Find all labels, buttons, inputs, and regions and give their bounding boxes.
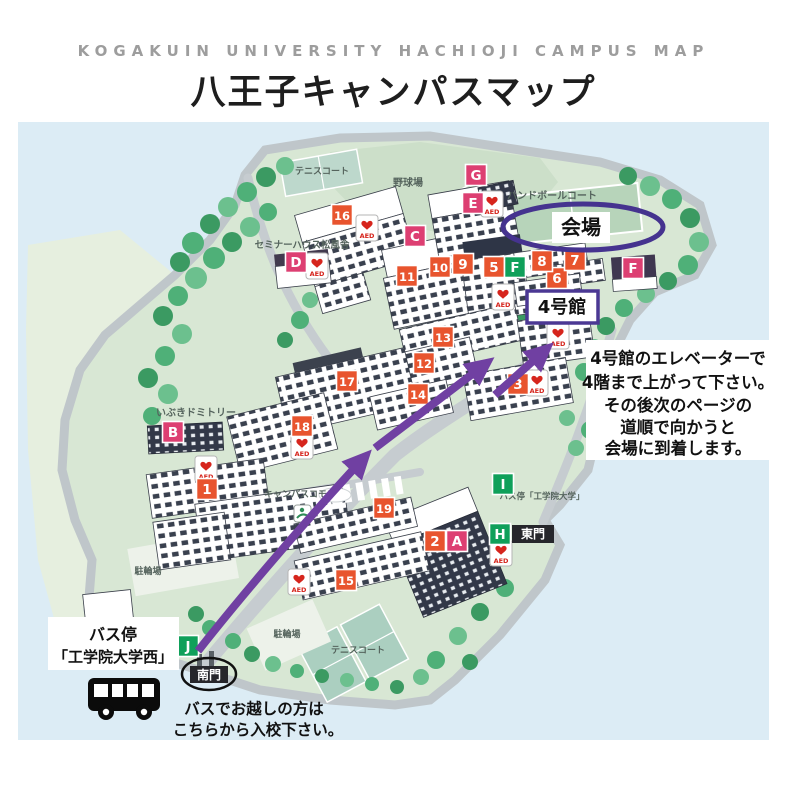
tree-icon: [200, 214, 220, 234]
tree-icon: [277, 332, 293, 348]
marker-5: 5: [484, 257, 505, 278]
tree-icon: [427, 651, 445, 669]
tree-icon: [568, 440, 584, 456]
svg-text:2: 2: [430, 534, 439, 550]
tree-icon: [680, 208, 700, 228]
tree-icon: [168, 286, 188, 306]
aed-marker: AED: [306, 253, 328, 279]
svg-text:15: 15: [338, 574, 354, 588]
area-label: ハンドボールコート: [507, 189, 597, 202]
svg-text:東門: 東門: [521, 526, 545, 541]
tree-icon: [237, 182, 257, 202]
svg-text:I: I: [500, 477, 505, 493]
tree-icon: [291, 311, 309, 329]
marker-16: 16: [332, 205, 353, 226]
campus-map: 野球場テニスコートハンドボールコートセミナーハウス松風舎いぶきドミトリーキャンパ…: [18, 122, 769, 740]
svg-text:道順で向かうと: 道順で向かうと: [620, 417, 736, 437]
tree-icon: [188, 606, 204, 622]
svg-text:12: 12: [416, 357, 432, 371]
tree-icon: [390, 680, 404, 694]
marker-f: F: [505, 257, 526, 278]
svg-text:バスでお越しの方は: バスでお越しの方は: [184, 699, 324, 718]
svg-text:J: J: [184, 639, 190, 655]
marker-11: 11: [397, 266, 418, 287]
tree-icon: [155, 346, 175, 366]
tree-icon: [462, 654, 478, 670]
marker-b: B: [163, 422, 184, 443]
svg-text:会場に到着します。: 会場に到着します。: [605, 438, 752, 458]
tree-icon: [413, 669, 429, 685]
venue-label: 会場: [561, 215, 601, 239]
svg-text:A: A: [452, 534, 463, 550]
tree-icon: [290, 664, 304, 678]
map-panel: 野球場テニスコートハンドボールコートセミナーハウス松風舎いぶきドミトリーキャンパ…: [18, 122, 769, 740]
tree-icon: [225, 633, 241, 649]
svg-text:6: 6: [552, 271, 561, 287]
tree-icon: [240, 217, 260, 237]
aed-marker: AED: [547, 323, 569, 349]
east-gate: 東門: [512, 525, 554, 543]
svg-text:AED: AED: [360, 232, 375, 240]
tree-icon: [449, 627, 467, 645]
svg-text:バス停: バス停: [89, 625, 137, 644]
marker-12: 12: [414, 353, 435, 374]
svg-text:10: 10: [432, 261, 448, 275]
marker-c: C: [405, 226, 426, 247]
tree-icon: [203, 247, 225, 269]
bus-icon: [88, 678, 160, 720]
svg-text:AED: AED: [485, 208, 500, 216]
tree-icon: [662, 189, 682, 209]
svg-text:こちらから入校下さい。: こちらから入校下さい。: [173, 720, 344, 739]
svg-text:F: F: [628, 261, 637, 277]
marker-h: H: [490, 524, 511, 545]
svg-text:AED: AED: [295, 450, 310, 458]
tree-icon: [640, 176, 660, 196]
marker-2: 2: [425, 531, 446, 552]
svg-text:9: 9: [458, 257, 467, 273]
svg-text:AED: AED: [551, 340, 566, 348]
page-title: 八王子キャンパスマップ: [0, 64, 787, 115]
svg-text:13: 13: [435, 331, 451, 345]
tree-icon: [158, 384, 178, 404]
tree-icon: [259, 203, 277, 221]
svg-text:F: F: [510, 260, 519, 276]
area-label: 野球場: [393, 176, 423, 189]
tree-icon: [689, 232, 709, 252]
aed-marker: AED: [288, 569, 310, 595]
svg-text:17: 17: [339, 375, 355, 389]
svg-text:7: 7: [570, 253, 579, 269]
svg-text:南門: 南門: [197, 667, 221, 682]
tree-icon: [302, 292, 318, 308]
tree-icon: [256, 167, 276, 187]
tree-icon: [340, 673, 354, 687]
svg-text:C: C: [410, 229, 420, 245]
area-label: 駐輪場: [273, 628, 300, 640]
svg-text:その後次のページの: その後次のページの: [604, 395, 752, 415]
tree-icon: [222, 232, 242, 252]
marker-9: 9: [453, 254, 474, 275]
marker-1: 1: [197, 479, 218, 500]
tree-icon: [365, 677, 379, 691]
tree-icon: [138, 368, 158, 388]
area-label: テニスコート: [295, 166, 349, 177]
svg-text:AED: AED: [292, 586, 307, 594]
tree-icon: [315, 669, 329, 683]
tree-icon: [244, 646, 260, 662]
marker-18: 18: [292, 416, 313, 437]
svg-text:1: 1: [202, 482, 211, 498]
tree-icon: [678, 255, 698, 275]
tree-icon: [265, 656, 281, 672]
marker-e: E: [463, 193, 484, 214]
svg-text:G: G: [470, 168, 481, 184]
svg-text:E: E: [468, 196, 477, 212]
marker-17: 17: [337, 371, 358, 392]
svg-text:H: H: [494, 527, 505, 543]
marker-8: 8: [532, 251, 553, 272]
bus-stop-west-box: バス停 「工学院大学西」: [48, 617, 179, 670]
svg-text:5: 5: [489, 260, 498, 276]
aed-marker: AED: [356, 215, 378, 241]
area-label: 駐輪場: [134, 565, 161, 577]
area-label: テニスコート: [331, 645, 385, 656]
tree-icon: [615, 299, 633, 317]
marker-g: G: [466, 165, 487, 186]
svg-text:8: 8: [537, 254, 546, 270]
svg-text:AED: AED: [494, 557, 509, 565]
marker-7: 7: [565, 250, 586, 271]
svg-text:14: 14: [410, 388, 426, 402]
instruction-text: 4号館のエレベーターで 4階まで上がって下さい。 その後次のページの 道順で向か…: [582, 348, 769, 458]
aed-marker: AED: [492, 284, 514, 310]
svg-text:16: 16: [334, 209, 350, 223]
svg-text:18: 18: [294, 420, 310, 434]
tree-icon: [170, 252, 190, 272]
tree-icon: [559, 410, 575, 426]
tree-icon: [659, 272, 677, 290]
page-title-en: KOGAKUIN UNIVERSITY HACHIOJI CAMPUS MAP: [0, 42, 787, 60]
building4-label: 4号館: [538, 296, 587, 318]
marker-13: 13: [433, 327, 454, 348]
marker-15: 15: [336, 570, 357, 591]
marker-a: A: [447, 531, 468, 552]
marker-19: 19: [374, 498, 395, 519]
svg-text:4階まで上がって下さい。: 4階まで上がって下さい。: [582, 372, 769, 392]
campus-map-page: KOGAKUIN UNIVERSITY HACHIOJI CAMPUS MAP …: [0, 0, 787, 787]
tree-icon: [276, 157, 294, 175]
marker-10: 10: [430, 257, 451, 278]
area-label: セミナーハウス松風舎: [255, 239, 350, 251]
marker-j: J: [178, 636, 199, 657]
tree-icon: [619, 167, 637, 185]
svg-text:AED: AED: [310, 270, 325, 278]
tree-icon: [182, 232, 204, 254]
svg-text:AED: AED: [530, 387, 545, 395]
tree-icon: [185, 267, 207, 289]
tree-icon: [153, 306, 173, 326]
marker-i: I: [493, 474, 514, 495]
svg-text:4号館のエレベーターで: 4号館のエレベーターで: [590, 348, 766, 368]
svg-text:19: 19: [376, 502, 392, 516]
area-label: いぶきドミトリー: [156, 407, 236, 419]
svg-text:「工学院大学西」: 「工学院大学西」: [53, 648, 173, 666]
building-b-dormitory: [147, 422, 223, 454]
svg-text:D: D: [290, 255, 301, 271]
svg-text:AED: AED: [496, 301, 511, 309]
bus-note: バスでお越しの方は こちらから入校下さい。: [173, 699, 344, 739]
tree-icon: [471, 603, 489, 621]
marker-14: 14: [408, 384, 429, 405]
marker-f: F: [623, 258, 644, 279]
tree-icon: [172, 324, 192, 344]
marker-d: D: [286, 252, 307, 273]
svg-text:11: 11: [399, 270, 415, 284]
svg-text:B: B: [168, 425, 178, 441]
tree-icon: [218, 197, 238, 217]
